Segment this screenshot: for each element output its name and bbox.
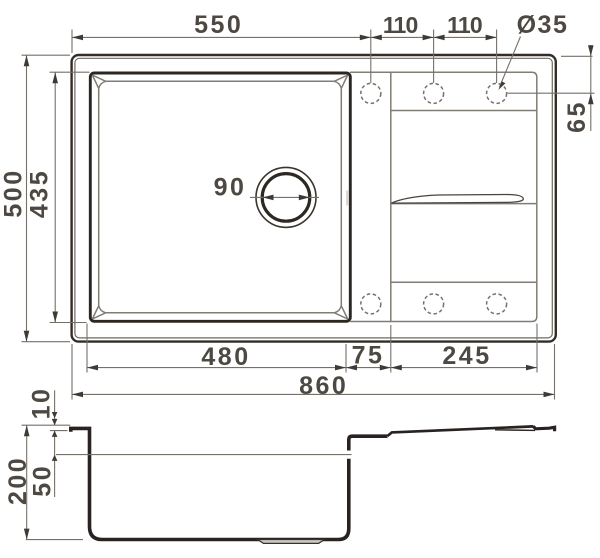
svg-text:10: 10 <box>28 387 56 420</box>
svg-text:550: 550 <box>194 11 243 39</box>
svg-text:90: 90 <box>214 174 247 202</box>
svg-text:Ø35: Ø35 <box>517 11 569 39</box>
svg-text:110: 110 <box>383 12 418 38</box>
svg-text:50: 50 <box>29 464 57 497</box>
svg-text:435: 435 <box>26 169 54 218</box>
svg-text:200: 200 <box>4 456 32 505</box>
svg-text:65: 65 <box>563 100 591 133</box>
svg-text:245: 245 <box>442 342 491 370</box>
svg-text:480: 480 <box>201 343 250 371</box>
svg-text:110: 110 <box>447 12 482 38</box>
svg-text:500: 500 <box>0 168 28 217</box>
svg-text:860: 860 <box>299 372 348 400</box>
svg-text:75: 75 <box>352 342 385 370</box>
